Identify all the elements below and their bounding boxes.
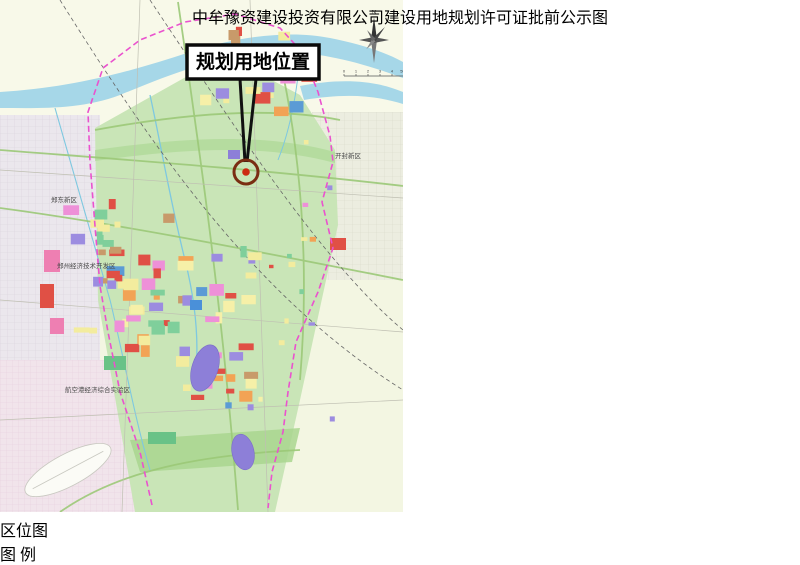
location-map-title-box: 区位图 [0,517,800,541]
region-label: 开封新区 [335,151,362,160]
site-marker-dot [242,168,250,176]
svg-text:5km: 5km [400,69,403,74]
region-label: 郑州经济技术开发区 [57,261,116,270]
legend-title: 图 例 [0,541,800,565]
location-map-title: 区位图 [0,523,48,540]
location-map: 郑东新区郑州经济技术开发区航空港经济综合实验区开封新区 N [0,0,800,565]
map-frame: 郑东新区郑州经济技术开发区航空港经济综合实验区开封新区 N [0,0,800,565]
page-title: 中牟豫资建设投资有限公司建设用地规划许可证批前公示图 [0,4,800,28]
region-label: 航空港经济综合实验区 [65,385,131,394]
location-map-graphic: 郑东新区郑州经济技术开发区航空港经济综合实验区开封新区 N [0,0,403,512]
announcement-sheet: 中牟豫资建设投资有限公司建设用地规划许可证批前公示图 [0,0,800,565]
region-label: 郑东新区 [51,195,78,204]
map-legend: 图 例 二类居住用地行政办公用地文化设施用地教育科研用地中小学用地体育用地医疗卫… [0,541,800,565]
left-callout-label: 规划用地位置 [196,50,310,73]
